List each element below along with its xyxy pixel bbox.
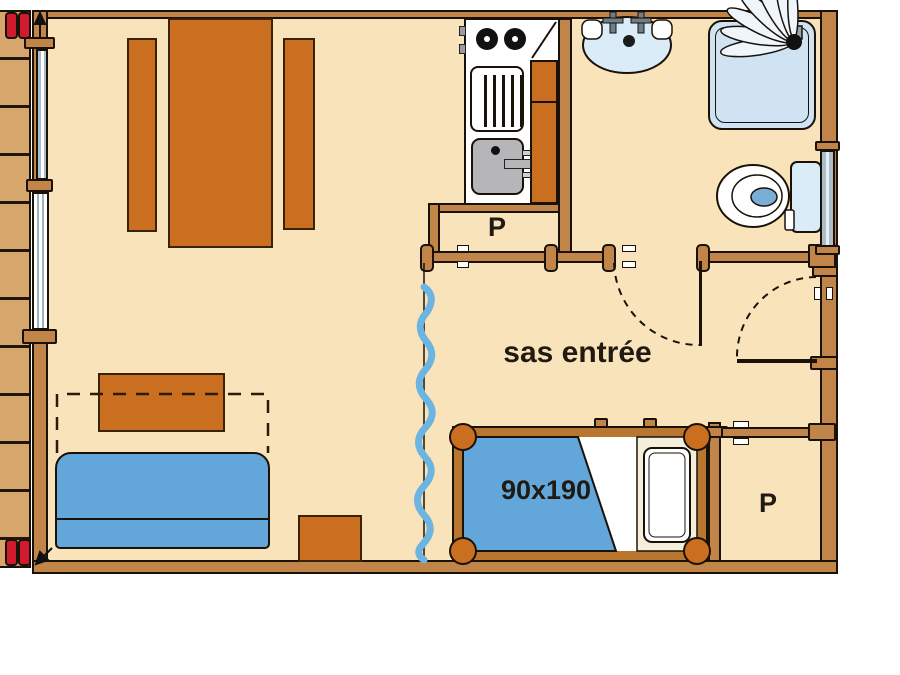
stove-knob: [459, 26, 466, 36]
wall-bottom: [32, 560, 838, 574]
flower-pot-icon: [18, 12, 31, 39]
flower-pot-icon: [5, 539, 18, 566]
bed-post-tab: [643, 418, 657, 428]
window-left-upper: [36, 49, 48, 180]
wall-top: [32, 10, 838, 19]
bedroom-closet-label: P: [748, 490, 788, 517]
flower-pot-icon: [18, 539, 31, 566]
window-sill: [22, 329, 57, 344]
window-sill: [815, 245, 840, 255]
sink-drain-icon: [491, 146, 500, 155]
sofa-seat-line: [56, 518, 269, 520]
wall-kitchen-bathroom: [558, 18, 572, 263]
stool-table: [298, 515, 362, 562]
bathroom-window: [820, 150, 835, 247]
window-sill: [26, 179, 53, 192]
window-sill: [815, 141, 840, 151]
bed-post-tab: [594, 418, 608, 428]
wall-post: [420, 244, 434, 272]
kitchen-closet-label: P: [477, 214, 517, 241]
entry-hall-label: sas entrée: [470, 338, 685, 368]
kitchen-counter: [530, 60, 558, 204]
bathroom-door-leaf: [699, 261, 702, 346]
door-latch-mark: [457, 245, 469, 252]
wall-post: [544, 244, 558, 272]
deck-terrace: [0, 10, 31, 568]
sink-tap-handle: [522, 172, 531, 178]
door-latch-mark: [814, 287, 821, 300]
door-latch-mark: [622, 261, 636, 268]
floorplan-canvas: sas entrée 90x190 P P: [0, 0, 900, 675]
shower-tray-inner: [715, 27, 809, 123]
door-latch-mark: [826, 287, 833, 300]
wall-entry-left: [420, 251, 615, 263]
window-left-lower: [32, 192, 49, 330]
stove-knob: [459, 44, 466, 54]
door-latch-mark: [622, 245, 636, 252]
wardrobe-column: [127, 38, 157, 232]
wall-closet-rail: [721, 427, 813, 438]
bed-size-label: 90x190: [466, 477, 626, 504]
entry-door-leaf: [737, 359, 817, 363]
sofa-bed: [55, 452, 270, 549]
wall-post: [602, 244, 616, 272]
window-sill: [24, 37, 55, 49]
flower-pot-icon: [5, 12, 18, 39]
drainer-rack: [470, 66, 524, 132]
counter-divider: [531, 101, 557, 103]
wardrobe-large: [168, 18, 273, 248]
door-latch-mark: [733, 438, 749, 445]
wall-bracket: [808, 423, 836, 441]
sink-tap-handle: [522, 150, 531, 156]
sink-faucet-icon: [504, 159, 531, 169]
stove-burner-center: [512, 36, 518, 42]
table: [98, 373, 225, 432]
wardrobe-column: [283, 38, 315, 230]
stove-burner-center: [484, 36, 490, 42]
door-frame-bracket: [812, 266, 838, 277]
wall-entry-right: [697, 251, 820, 263]
door-latch-mark: [733, 421, 749, 428]
door-latch-mark: [457, 261, 469, 268]
wall-bed-closet-stud: [708, 422, 721, 562]
